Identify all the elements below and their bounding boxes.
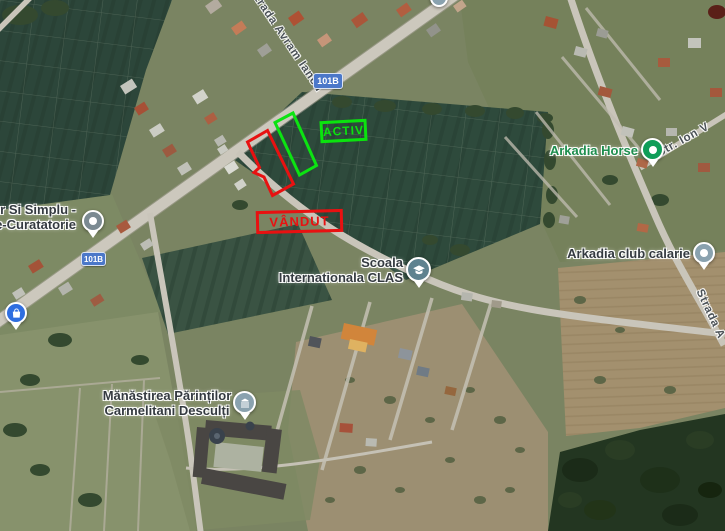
shopping-bag-icon	[11, 308, 22, 319]
arkadia-club-pin-icon[interactable]	[693, 242, 715, 264]
vandut-annotation-box: VÂNDUT	[256, 209, 344, 234]
pin-dot-icon	[89, 217, 97, 225]
satellite-map-viewport[interactable]: ACTIV VÂNDUT 101B 101B Strada Avram Ianc…	[0, 0, 725, 531]
route-badge-101b-upper: 101B	[313, 73, 343, 89]
poi-label-line: Carmelitani Desculți	[103, 403, 232, 418]
curatatorie-pin-icon[interactable]	[82, 210, 104, 232]
school-pin-icon[interactable]	[406, 257, 431, 282]
poi-label-arkadia-horse[interactable]: Arkadia Horse	[550, 143, 638, 158]
poi-label-scoala[interactable]: Scoala Internationala CLAS	[279, 255, 403, 285]
monastery-pin-icon[interactable]	[233, 391, 256, 414]
poi-label-line: Scoala	[279, 255, 403, 270]
poi-label-line: e-Curatatorie	[0, 217, 76, 232]
active-plot-outline	[275, 113, 317, 175]
route-badge-label: 101B	[317, 76, 339, 86]
activ-annotation-label: ACTIV	[323, 123, 365, 139]
arkadia-horse-pin-icon[interactable]	[641, 138, 664, 161]
graduation-cap-icon	[412, 263, 426, 277]
route-badge-label: 101B	[84, 255, 103, 264]
poi-label-arkadia-club[interactable]: Arkadia club calarie	[567, 246, 690, 261]
pin-dot-icon	[649, 146, 657, 154]
temple-icon	[239, 397, 251, 409]
route-badge-101b-lower: 101B	[81, 252, 106, 266]
poi-label-manastirea[interactable]: Mănăstirea Părinților Carmelitani Descul…	[103, 388, 232, 418]
poi-label-line: r Si Simplu -	[0, 202, 76, 217]
poi-label-line: Mănăstirea Părinților	[103, 388, 232, 403]
activ-annotation-box: ACTIV	[319, 119, 367, 143]
poi-label-curatatorie[interactable]: r Si Simplu - e-Curatatorie	[0, 202, 76, 232]
vandut-annotation-label: VÂNDUT	[269, 213, 330, 230]
sold-plot-outline	[248, 131, 294, 196]
pin-dot-icon	[700, 249, 708, 257]
shopping-bag-pin-icon[interactable]	[5, 302, 27, 324]
poi-label-line: Internationala CLAS	[279, 270, 403, 285]
